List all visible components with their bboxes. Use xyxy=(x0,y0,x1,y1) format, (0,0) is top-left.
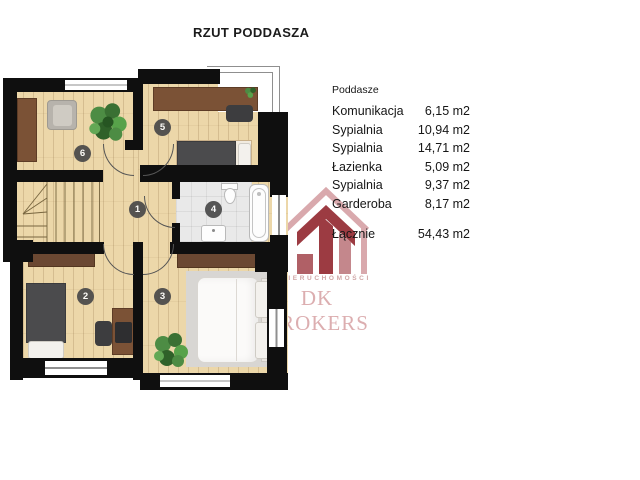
legend-row: Garderoba 8,17 m2 xyxy=(332,195,470,214)
wardrobe xyxy=(177,252,261,268)
total-area: 54,43 m2 xyxy=(418,225,470,244)
sink-tap xyxy=(212,229,215,232)
wall-segment xyxy=(258,112,288,168)
legend-total-row: Łącznie 54,43 m2 xyxy=(332,225,470,244)
room-label: Sypialnia xyxy=(332,121,383,140)
page: NIERUCHOMOŚCI DK BROKERS RZUT PODDASZA xyxy=(0,0,640,480)
room-badge-4: 4 xyxy=(205,201,222,218)
room-area: 8,17 m2 xyxy=(425,195,470,214)
bed-duvet xyxy=(26,283,66,343)
outside-area xyxy=(0,262,10,400)
window xyxy=(269,309,284,347)
wardrobe xyxy=(28,252,95,267)
legend-row: Sypialnia 10,94 m2 xyxy=(332,121,470,140)
stairs xyxy=(17,182,100,242)
room-badge-1: 1 xyxy=(129,201,146,218)
window xyxy=(65,80,127,90)
window xyxy=(272,195,286,235)
legend-row: Komunikacja 6,15 m2 xyxy=(332,102,470,121)
bathtub-drain xyxy=(257,192,261,196)
bed-pillow xyxy=(28,341,64,359)
plant xyxy=(151,328,191,372)
wall-segment xyxy=(138,69,220,84)
room-label: Sypialnia xyxy=(332,176,383,195)
legend-row: Łazienka 5,09 m2 xyxy=(332,158,470,177)
room-badge-5: 5 xyxy=(154,119,171,136)
wall-segment xyxy=(3,170,103,182)
office-chair xyxy=(95,321,112,346)
room-area: 5,09 m2 xyxy=(425,158,470,177)
legend-header: Poddasze xyxy=(332,84,470,96)
room-area: 9,37 m2 xyxy=(425,176,470,195)
armchair-seat xyxy=(53,105,72,126)
sideboard xyxy=(17,98,37,162)
office-chair xyxy=(226,105,253,122)
plant xyxy=(86,100,130,144)
plant xyxy=(243,86,259,100)
room-badge-3: 3 xyxy=(154,288,171,305)
room-label: Łazienka xyxy=(332,158,382,177)
wall-segment xyxy=(133,84,143,144)
wall-segment xyxy=(270,235,288,243)
room-badge-2: 2 xyxy=(77,288,94,305)
brand-subtitle: NIERUCHOMOŚCI xyxy=(281,275,371,282)
window xyxy=(45,361,107,375)
room-area: 10,94 m2 xyxy=(418,121,470,140)
wall-segment xyxy=(3,78,17,242)
room-label: Garderoba xyxy=(332,195,392,214)
wall-segment xyxy=(6,242,104,254)
bed-duvet-fold xyxy=(236,279,237,361)
room-area: 14,71 m2 xyxy=(418,139,470,158)
floor-plan: 1 2 3 4 5 6 xyxy=(0,55,292,400)
bed-duvet xyxy=(197,277,259,363)
monitor xyxy=(115,322,132,343)
legend-row: Sypialnia 9,37 m2 xyxy=(332,176,470,195)
room-label: Sypialnia xyxy=(332,139,383,158)
room-label: Komunikacja xyxy=(332,102,404,121)
legend-row: Sypialnia 14,71 m2 xyxy=(332,139,470,158)
total-label: Łącznie xyxy=(332,225,375,244)
window xyxy=(160,375,230,387)
room-area: 6,15 m2 xyxy=(425,102,470,121)
page-title: RZUT PODDASZA xyxy=(193,25,309,40)
room-badge-6: 6 xyxy=(74,145,91,162)
outside-area xyxy=(0,378,143,400)
wall-segment xyxy=(133,242,143,380)
area-legend: Poddasze Komunikacja 6,15 m2 Sypialnia 1… xyxy=(332,84,470,243)
wall-segment xyxy=(255,242,288,272)
sink xyxy=(201,225,226,242)
